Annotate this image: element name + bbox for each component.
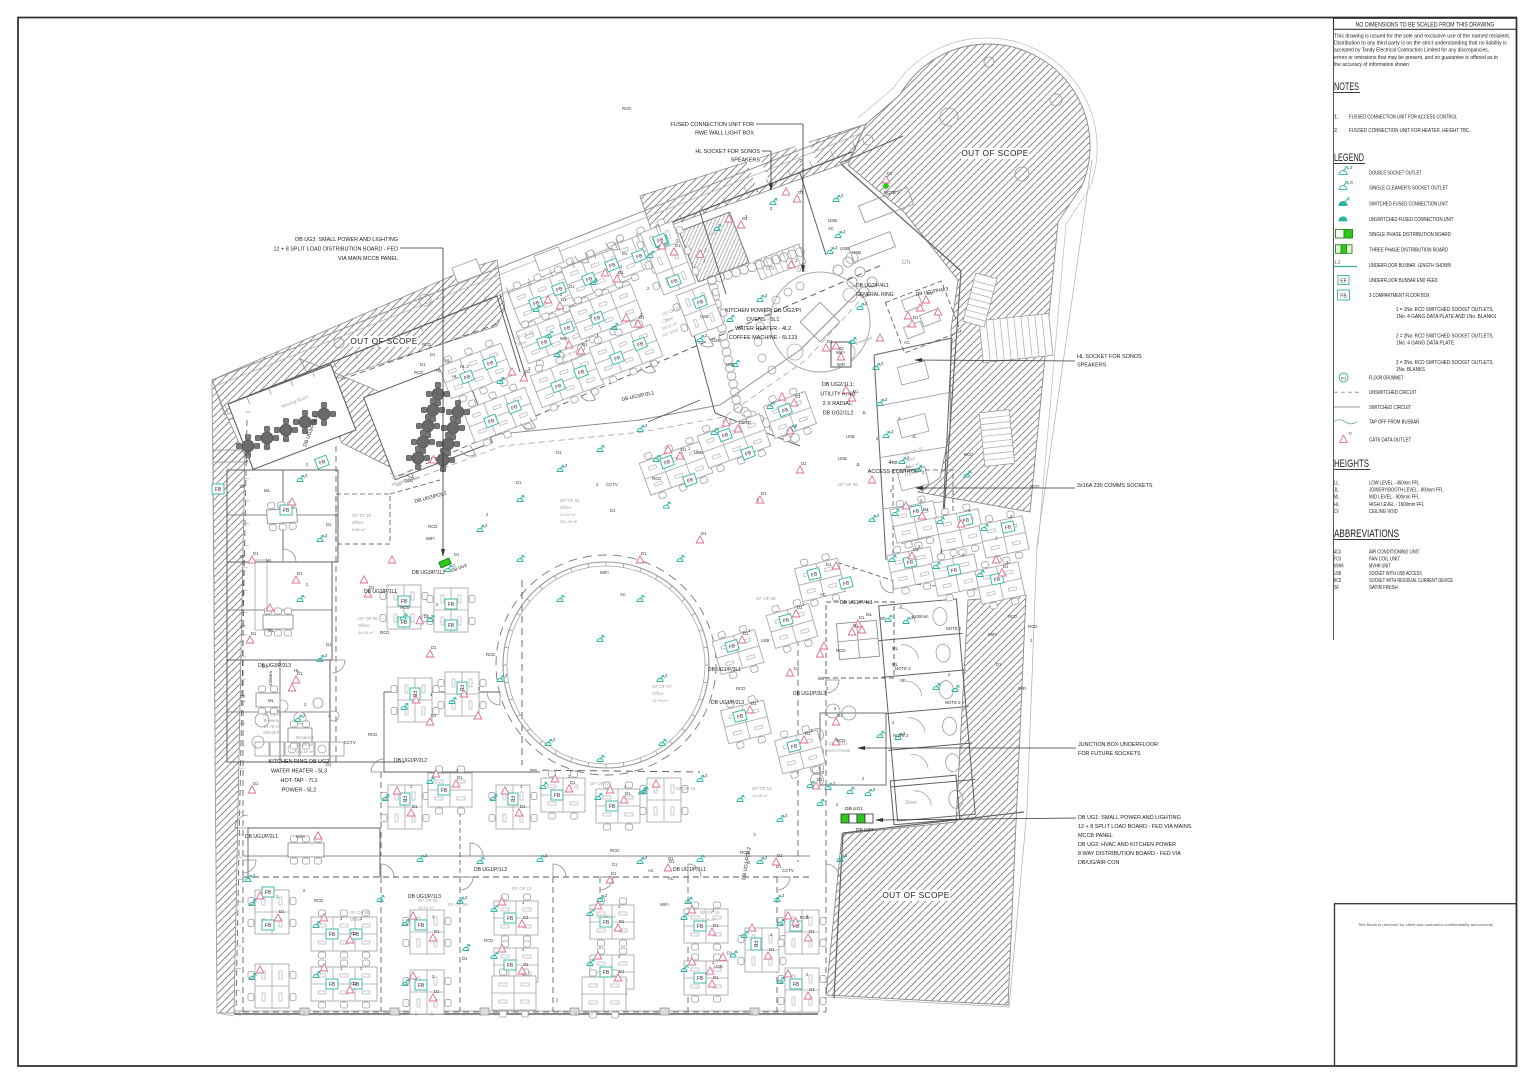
svg-text:FB: FB bbox=[603, 920, 610, 926]
svg-text:UNDERFLOOR BUSBAR END FEED: UNDERFLOOR BUSBAR END FEED bbox=[1369, 278, 1438, 284]
svg-text:D1: D1 bbox=[923, 507, 929, 512]
svg-text:errors or omissions that may b: errors or omissions that may be present,… bbox=[1334, 55, 1498, 61]
svg-text:accepted by Tandy Electrical C: accepted by Tandy Electrical Contractors… bbox=[1334, 48, 1489, 54]
svg-text:D1: D1 bbox=[625, 791, 631, 796]
svg-text:D1: D1 bbox=[887, 171, 893, 176]
svg-text:D1: D1 bbox=[454, 552, 460, 557]
svg-text:GF OF 05: GF OF 05 bbox=[756, 596, 776, 601]
svg-text:NOTE 2: NOTE 2 bbox=[893, 733, 909, 738]
svg-text:WiFi: WiFi bbox=[1018, 686, 1026, 691]
svg-text:GF OF 12: GF OF 12 bbox=[590, 781, 610, 786]
svg-text:SF: SF bbox=[240, 554, 246, 559]
svg-text:Office: Office bbox=[352, 520, 364, 525]
svg-text:RCD: RCD bbox=[422, 342, 431, 347]
svg-text:LL: LL bbox=[1334, 481, 1339, 487]
svg-text:FB: FB bbox=[603, 970, 610, 976]
svg-text:FB: FB bbox=[329, 982, 336, 988]
svg-text:D1: D1 bbox=[326, 642, 332, 647]
svg-text:FB: FB bbox=[793, 982, 800, 988]
svg-text:SPEAKERS: SPEAKERS bbox=[1077, 363, 1107, 369]
svg-text:RCD: RCD bbox=[380, 630, 389, 635]
svg-text:D1: D1 bbox=[612, 862, 618, 867]
svg-text:TAP OFF FROM BUSBAR: TAP OFF FROM BUSBAR bbox=[1369, 420, 1419, 426]
svg-text:RCD: RCD bbox=[400, 605, 409, 610]
svg-text:RCD: RCD bbox=[800, 915, 809, 920]
svg-text:D1: D1 bbox=[556, 450, 562, 455]
svg-text:24.76 m²: 24.76 m² bbox=[264, 724, 281, 729]
svg-text:FB: FB bbox=[509, 796, 515, 803]
svg-text:1.: 1. bbox=[1334, 115, 1338, 121]
svg-text:O1: O1 bbox=[523, 962, 529, 967]
svg-text:CCTV: CCTV bbox=[606, 482, 618, 487]
svg-text:D1: D1 bbox=[610, 508, 616, 513]
svg-text:D1: D1 bbox=[996, 662, 1002, 667]
svg-text:D1: D1 bbox=[809, 929, 815, 934]
svg-text:GF OF 06: GF OF 06 bbox=[838, 482, 858, 487]
svg-text:CEILING VOID: CEILING VOID bbox=[1369, 509, 1398, 515]
svg-text:SOCKET WITH USB ACCESS: SOCKET WITH USB ACCESS bbox=[1369, 571, 1422, 577]
svg-text:2 = 2No. RCD SWITCHED SOCKET O: 2 = 2No. RCD SWITCHED SOCKET OUTLETS, bbox=[1396, 334, 1494, 340]
svg-text:WiFi: WiFi bbox=[426, 536, 435, 541]
svg-text:DN: DN bbox=[797, 268, 806, 274]
svg-text:RCD: RCD bbox=[414, 370, 423, 375]
svg-text:ML: ML bbox=[1334, 495, 1339, 501]
svg-text:D1: D1 bbox=[412, 804, 418, 809]
svg-text:GF OF 15: GF OF 15 bbox=[700, 910, 720, 915]
svg-text:MCCB PANEL: MCCB PANEL bbox=[1078, 833, 1113, 839]
svg-text:FB: FB bbox=[418, 923, 425, 929]
svg-text:DB UG3/P/1L2: DB UG3/P/1L2 bbox=[412, 570, 445, 576]
svg-text:JL: JL bbox=[862, 410, 867, 415]
svg-text:ML: ML bbox=[866, 612, 873, 617]
svg-text:GF OF 07: GF OF 07 bbox=[652, 684, 672, 689]
svg-text:D1: D1 bbox=[777, 853, 783, 858]
svg-text:HL: HL bbox=[1334, 502, 1339, 508]
svg-text:D1: D1 bbox=[351, 931, 357, 936]
svg-text:D1: D1 bbox=[761, 491, 767, 496]
svg-text:D1: D1 bbox=[431, 645, 437, 650]
svg-text:RCD: RCD bbox=[1334, 578, 1341, 584]
svg-text:NOTES: NOTES bbox=[1334, 81, 1359, 93]
svg-text:USB: USB bbox=[761, 638, 770, 643]
svg-text:3 COMPARTMENT FLOOR BOX: 3 COMPARTMENT FLOOR BOX bbox=[1369, 293, 1430, 299]
svg-text:Store: Store bbox=[905, 800, 917, 806]
svg-text:THREE PHASE DISTRIBUTION BOARD: THREE PHASE DISTRIBUTION BOARD bbox=[1369, 248, 1448, 254]
svg-text:SWITCHED FUSED CONNECTION UNIT: SWITCHED FUSED CONNECTION UNIT bbox=[1369, 202, 1449, 208]
svg-text:SF: SF bbox=[240, 694, 246, 699]
svg-text:D1: D1 bbox=[431, 713, 437, 718]
svg-text:SOCKET WITH RESIDUAL CURRENT D: SOCKET WITH RESIDUAL CURRENT DEVICE bbox=[1369, 578, 1453, 584]
svg-text:USB: USB bbox=[714, 964, 723, 969]
svg-text:DN: DN bbox=[902, 260, 911, 266]
svg-text:D1: D1 bbox=[253, 551, 259, 556]
svg-text:D1: D1 bbox=[326, 522, 332, 527]
svg-text:D1: D1 bbox=[826, 562, 832, 567]
svg-text:FB: FB bbox=[554, 793, 561, 799]
svg-text:FB: FB bbox=[401, 796, 407, 803]
svg-text:RCD: RCD bbox=[486, 652, 495, 657]
svg-text:HL 2: HL 2 bbox=[460, 364, 469, 369]
svg-text:HL SOCKET FOR SONOS: HL SOCKET FOR SONOS bbox=[695, 149, 760, 155]
svg-text:GF OF 10: GF OF 10 bbox=[752, 786, 772, 791]
svg-text:RCD: RCD bbox=[622, 106, 631, 111]
svg-text:OVENS - 5L1: OVENS - 5L1 bbox=[747, 317, 780, 323]
svg-text:OUT OF SCOPE: OUT OF SCOPE bbox=[961, 148, 1028, 158]
svg-text:266.56 ft²: 266.56 ft² bbox=[263, 730, 281, 735]
svg-text:SF: SF bbox=[900, 678, 906, 683]
svg-text:MID LEVEL - 900mm FFL: MID LEVEL - 900mm FFL bbox=[1369, 495, 1419, 501]
svg-text:GF OF 04: GF OF 04 bbox=[560, 498, 580, 503]
svg-text:FB: FB bbox=[283, 508, 290, 514]
svg-text:UTILITY RING: UTILITY RING bbox=[820, 392, 855, 398]
svg-text:GF OF 09: GF OF 09 bbox=[448, 902, 468, 907]
svg-text:DB UG2: HVAC AND KITCHEN POWER: DB UG2: HVAC AND KITCHEN POWER bbox=[1078, 842, 1176, 848]
svg-text:RCD: RCD bbox=[610, 848, 619, 853]
svg-text:CAT6 DATA OUTLET: CAT6 DATA OUTLET bbox=[1369, 437, 1412, 443]
svg-text:SF: SF bbox=[240, 484, 246, 489]
svg-text:HOT-TAP - 7L1: HOT-TAP - 7L1 bbox=[281, 778, 318, 784]
svg-text:D1: D1 bbox=[420, 362, 426, 367]
svg-text:Office: Office bbox=[358, 623, 370, 628]
svg-text:OUT OF SCOPE: OUT OF SCOPE bbox=[882, 890, 949, 900]
svg-text:24.76 m²: 24.76 m² bbox=[296, 742, 314, 747]
svg-text:FUSSED CONNECTION UNIT FOR HEA: FUSSED CONNECTION UNIT FOR HEATER. HEIGH… bbox=[1349, 128, 1470, 134]
svg-text:2x16A 230 COMMS SOCKETS: 2x16A 230 COMMS SOCKETS bbox=[1077, 483, 1153, 489]
svg-text:WiFi: WiFi bbox=[660, 902, 669, 907]
svg-text:FG: FG bbox=[1341, 376, 1347, 381]
svg-text:D1: D1 bbox=[681, 447, 687, 452]
svg-text:O1: O1 bbox=[809, 987, 815, 992]
svg-text:ABBREVIATIONS: ABBREVIATIONS bbox=[1334, 528, 1399, 540]
svg-text:28.05 m²: 28.05 m² bbox=[700, 917, 716, 922]
svg-text:NOTE 2: NOTE 2 bbox=[946, 626, 962, 631]
svg-text:D1: D1 bbox=[434, 989, 440, 994]
svg-text:FUSSED CONNECTION UNIT FOR ACC: FUSSED CONNECTION UNIT FOR ACCESS CONTRO… bbox=[1349, 115, 1457, 121]
svg-text:FB: FB bbox=[697, 924, 704, 930]
svg-text:SWITCHED CIRCUIT: SWITCHED CIRCUIT bbox=[1369, 405, 1412, 411]
svg-text:D1: D1 bbox=[668, 856, 674, 861]
svg-text:D1: D1 bbox=[622, 251, 628, 256]
svg-text:SF: SF bbox=[1334, 585, 1339, 591]
svg-text:AC: AC bbox=[820, 592, 826, 597]
svg-text:GF OF 13: GF OF 13 bbox=[596, 914, 616, 919]
svg-text:DB UG1/P/1L3: DB UG1/P/1L3 bbox=[408, 894, 441, 900]
svg-text:3 = 2No. RCD SWITCHED SOCKET O: 3 = 2No. RCD SWITCHED SOCKET OUTLETS, bbox=[1396, 360, 1494, 366]
svg-text:RCD: RCD bbox=[964, 452, 973, 457]
svg-text:GF CS 05: GF CS 05 bbox=[263, 712, 282, 717]
svg-text:2.: 2. bbox=[1334, 128, 1338, 134]
svg-text:FB: FB bbox=[507, 963, 514, 969]
svg-text:DB UG1/P/3L3: DB UG1/P/3L3 bbox=[793, 691, 826, 697]
svg-text:HL SOCKET FOR SONOS: HL SOCKET FOR SONOS bbox=[1077, 354, 1142, 360]
svg-text:GF OF 13: GF OF 13 bbox=[512, 886, 532, 891]
svg-text:FB: FB bbox=[507, 916, 514, 922]
svg-text:Secret Room: Secret Room bbox=[826, 748, 851, 753]
svg-text:26.42 m²: 26.42 m² bbox=[418, 905, 434, 910]
svg-text:WiFi: WiFi bbox=[836, 350, 845, 355]
svg-text:D1: D1 bbox=[913, 315, 919, 320]
svg-text:D1: D1 bbox=[701, 531, 707, 536]
svg-text:D1: D1 bbox=[618, 270, 624, 275]
svg-text:D1: D1 bbox=[430, 352, 436, 357]
svg-text:SINGLE PHASE DISTRIBUTION BOAR: SINGLE PHASE DISTRIBUTION BOARD bbox=[1369, 232, 1451, 238]
svg-text:JOINERY/BOOTH LEVEL - 800mm FF: JOINERY/BOOTH LEVEL - 800mm FFL bbox=[1369, 488, 1443, 494]
svg-text:44.55 m²: 44.55 m² bbox=[358, 630, 374, 635]
svg-text:O1: O1 bbox=[351, 981, 357, 986]
svg-text:RCD: RCD bbox=[1008, 614, 1017, 619]
svg-text:HL: HL bbox=[452, 374, 458, 379]
svg-text:D1: D1 bbox=[837, 713, 843, 718]
svg-text:AC: AC bbox=[648, 868, 654, 873]
svg-text:ML: ML bbox=[268, 628, 275, 633]
svg-text:GF OF 08: GF OF 08 bbox=[350, 910, 370, 915]
svg-text:1100mm: 1100mm bbox=[912, 614, 929, 619]
svg-text:1No. 4 GANG DATA PLATE AND 1No: 1No. 4 GANG DATA PLATE AND 1No. BLANKS bbox=[1396, 314, 1497, 320]
svg-text:FB: FB bbox=[697, 976, 704, 982]
svg-text:D1: D1 bbox=[619, 919, 625, 924]
svg-text:WATER HEATER - 5L3: WATER HEATER - 5L3 bbox=[271, 769, 327, 775]
svg-text:32.62 m²: 32.62 m² bbox=[560, 512, 576, 517]
svg-text:WiFi: WiFi bbox=[837, 362, 845, 367]
svg-text:DB UG1/P/2L1: DB UG1/P/2L1 bbox=[245, 834, 278, 840]
svg-text:CCTV: CCTV bbox=[782, 868, 794, 873]
svg-text:351.26 ft²: 351.26 ft² bbox=[560, 519, 578, 524]
svg-text:D1: D1 bbox=[462, 956, 468, 961]
svg-text:JL: JL bbox=[912, 434, 917, 439]
svg-text:15.76 m²: 15.76 m² bbox=[652, 698, 668, 703]
svg-text:WiFi: WiFi bbox=[296, 834, 305, 839]
svg-text:USB: USB bbox=[1334, 571, 1341, 577]
svg-text:DB UG2/1L1:: DB UG2/1L1: bbox=[822, 382, 855, 388]
svg-text:D1: D1 bbox=[713, 923, 719, 928]
svg-text:D1: D1 bbox=[794, 666, 800, 671]
svg-text:FB: FB bbox=[215, 487, 222, 493]
svg-text:USB: USB bbox=[838, 456, 847, 461]
svg-text:DB UG1/P/3L1: DB UG1/P/3L1 bbox=[708, 667, 741, 673]
svg-text:FB: FB bbox=[441, 788, 448, 794]
svg-text:ACU: ACU bbox=[1334, 550, 1341, 556]
svg-text:EF: EF bbox=[1340, 279, 1346, 285]
svg-text:O1: O1 bbox=[523, 915, 529, 920]
svg-text:CCTV: CCTV bbox=[344, 740, 356, 745]
svg-text:COFFEE MACHINE - 6L123: COFFEE MACHINE - 6L123 bbox=[729, 335, 798, 341]
svg-text:4no: 4no bbox=[888, 460, 897, 466]
svg-text:DB UG1: DB UG1 bbox=[845, 806, 863, 812]
svg-text:AC: AC bbox=[828, 226, 834, 231]
svg-text:NOTE 2: NOTE 2 bbox=[895, 666, 911, 671]
svg-text:JL: JL bbox=[1334, 488, 1339, 494]
svg-text:JUNCTION BOX UNDERFLOOR: JUNCTION BOX UNDERFLOOR bbox=[1078, 742, 1158, 748]
svg-text:D1: D1 bbox=[619, 969, 625, 974]
svg-text:JL: JL bbox=[856, 462, 861, 467]
svg-text:AC: AC bbox=[620, 592, 626, 597]
svg-text:DB UG3/P/1L1: DB UG3/P/1L1 bbox=[364, 589, 397, 595]
svg-text:5.80 m²: 5.80 m² bbox=[352, 527, 366, 532]
svg-text:Office: Office bbox=[652, 691, 664, 696]
svg-text:USB: USB bbox=[846, 434, 855, 439]
svg-text:FLOOR GROMMET: FLOOR GROMMET bbox=[1369, 376, 1404, 382]
svg-text:RCD: RCD bbox=[1028, 624, 1037, 629]
svg-text:SPEAKERS: SPEAKERS bbox=[731, 158, 761, 164]
svg-text:FB: FB bbox=[401, 620, 408, 626]
svg-text:266.56 ft²: 266.56 ft² bbox=[296, 749, 314, 754]
svg-text:D1: D1 bbox=[675, 243, 681, 248]
svg-text:KITCHEN POWER: DB UG2/PI: KITCHEN POWER: DB UG2/PI bbox=[725, 308, 801, 314]
svg-text:D1: D1 bbox=[776, 864, 782, 869]
svg-text:KITCHEN RING DB UG2: KITCHEN RING DB UG2 bbox=[269, 759, 330, 765]
svg-text:RCD: RCD bbox=[836, 738, 845, 743]
svg-text:NOTE 2: NOTE 2 bbox=[945, 700, 961, 705]
svg-text:FB: FB bbox=[609, 804, 616, 810]
svg-text:LEGEND: LEGEND bbox=[1334, 152, 1364, 164]
svg-text:D1: D1 bbox=[859, 615, 865, 620]
svg-text:1.2: 1.2 bbox=[1334, 260, 1341, 265]
svg-text:USB: USB bbox=[840, 246, 849, 251]
svg-text:DB UG1/P/1L1: DB UG1/P/1L1 bbox=[673, 867, 706, 873]
svg-text:RCD: RCD bbox=[314, 898, 323, 903]
svg-text:DB/UG/AIR CON: DB/UG/AIR CON bbox=[1078, 860, 1119, 866]
svg-text:VIA MAIN MCCB PANEL: VIA MAIN MCCB PANEL bbox=[338, 256, 398, 262]
svg-text:DB UG1/P/2L2: DB UG1/P/2L2 bbox=[394, 758, 427, 764]
svg-text:FB: FB bbox=[329, 932, 336, 938]
svg-text:DB UG2/1L2: DB UG2/1L2 bbox=[823, 411, 854, 417]
svg-text:AC: AC bbox=[668, 876, 674, 881]
svg-text:WiFi: WiFi bbox=[988, 632, 997, 637]
svg-text:MVHR: MVHR bbox=[1334, 564, 1344, 570]
svg-text:D1: D1 bbox=[561, 297, 567, 302]
svg-text:HL: HL bbox=[445, 358, 451, 363]
svg-text:Office: Office bbox=[560, 505, 572, 510]
svg-text:D1: D1 bbox=[817, 777, 823, 782]
svg-text:D1: D1 bbox=[727, 950, 733, 955]
svg-text:D1: D1 bbox=[769, 947, 775, 952]
svg-text:D1: D1 bbox=[326, 762, 332, 767]
svg-text:RCD: RCD bbox=[836, 648, 845, 653]
svg-text:1No. BLANKS: 1No. BLANKS bbox=[1396, 367, 1425, 373]
svg-text:AIR CONDITIONING UNIT: AIR CONDITIONING UNIT bbox=[1369, 550, 1420, 556]
svg-text:Breakout: Breakout bbox=[296, 735, 314, 740]
svg-text:SINGLE CLEANER'S SOCKET OUTLET: SINGLE CLEANER'S SOCKET OUTLET bbox=[1369, 186, 1449, 192]
svg-text:ML: ML bbox=[264, 488, 271, 493]
svg-text:POWER - 5L2: POWER - 5L2 bbox=[282, 788, 316, 794]
svg-text:ML: ML bbox=[268, 698, 275, 703]
svg-text:WiFi: WiFi bbox=[560, 336, 569, 341]
svg-text:D1: D1 bbox=[434, 929, 440, 934]
svg-text:HIGH LEVEL - 1600mm FFL: HIGH LEVEL - 1600mm FFL bbox=[1369, 502, 1424, 508]
svg-text:DOUBLE SOCKET OUTLET: DOUBLE SOCKET OUTLET bbox=[1369, 171, 1422, 177]
svg-text:UNSWITCHED CIRCUIT: UNSWITCHED CIRCUIT bbox=[1369, 390, 1417, 396]
svg-text:D1: D1 bbox=[641, 551, 647, 556]
svg-text:DB UG1/P/4L1: DB UG1/P/4L1 bbox=[840, 600, 873, 606]
svg-text:D1: D1 bbox=[279, 909, 285, 914]
svg-text:This drawing is issued for the: This drawing is issued for the sole and … bbox=[1334, 33, 1510, 39]
svg-text:WiFi: WiFi bbox=[600, 570, 609, 575]
svg-text:AC: AC bbox=[904, 340, 910, 345]
svg-text:DB UG3: SMALL POWER AND LIGHTI: DB UG3: SMALL POWER AND LIGHTING bbox=[295, 237, 398, 243]
svg-text:RCD: RCD bbox=[368, 732, 377, 737]
svg-text:GF OF 08: GF OF 08 bbox=[358, 616, 378, 621]
svg-text:D1: D1 bbox=[569, 284, 575, 289]
svg-text:UNDERFLOOR BUSBAR. LENGTH SHOW: UNDERFLOOR BUSBAR. LENGTH SHOWN bbox=[1369, 263, 1451, 269]
svg-text:NOTE 1: NOTE 1 bbox=[884, 190, 900, 195]
svg-text:FCU: FCU bbox=[1334, 557, 1341, 563]
svg-text:FB: FB bbox=[752, 941, 758, 948]
svg-text:FB: FB bbox=[1340, 294, 1347, 300]
svg-text:GF OF 14: GF OF 14 bbox=[676, 786, 696, 791]
svg-text:D1: D1 bbox=[424, 614, 430, 619]
svg-text:ML: ML bbox=[266, 558, 273, 563]
svg-text:D: D bbox=[1349, 431, 1352, 436]
svg-text:12 + 8 SPLIT LOAD BOARD - FED: 12 + 8 SPLIT LOAD BOARD - FED VIA MAINS bbox=[1078, 824, 1192, 830]
svg-text:DB UG3/P/2L3: DB UG3/P/2L3 bbox=[258, 663, 291, 669]
svg-text:FOR FUTURE SOCKETS: FOR FUTURE SOCKETS bbox=[1078, 751, 1141, 757]
svg-text:D1: D1 bbox=[570, 780, 576, 785]
svg-text:USB: USB bbox=[700, 314, 709, 319]
svg-text:NO DIMENSIONS TO BE SCALED FRO: NO DIMENSIONS TO BE SCALED FROM THIS DRA… bbox=[1356, 22, 1495, 29]
svg-text:D1: D1 bbox=[853, 623, 859, 628]
svg-text:FB: FB bbox=[448, 602, 455, 608]
svg-text:SF: SF bbox=[240, 624, 246, 629]
svg-text:GF ST 15: GF ST 15 bbox=[352, 513, 372, 518]
svg-text:RCD: RCD bbox=[428, 524, 437, 529]
svg-text:D1: D1 bbox=[801, 461, 807, 466]
svg-text:SATIN FINISH: SATIN FINISH bbox=[1369, 585, 1398, 591]
svg-text:HL: HL bbox=[294, 668, 300, 673]
svg-text:DB UG1: SMALL POWER AND LIGHTI: DB UG1: SMALL POWER AND LIGHTING bbox=[1078, 815, 1181, 821]
svg-text:D1: D1 bbox=[457, 775, 463, 780]
svg-text:Distribution to any third part: Distribution to any third party is on th… bbox=[1334, 41, 1507, 47]
svg-text:WiFi: WiFi bbox=[818, 676, 827, 681]
svg-text:DB UG1/P/1L2: DB UG1/P/1L2 bbox=[474, 867, 507, 873]
svg-text:1 = 1No. RCD SWITCHED SOCKET O: 1 = 1No. RCD SWITCHED SOCKET OUTLETS, bbox=[1396, 307, 1494, 313]
svg-text:FB: FB bbox=[418, 983, 425, 989]
svg-text:DB UG1/P/2L3: DB UG1/P/2L3 bbox=[711, 700, 744, 706]
svg-text:Breakout: Breakout bbox=[264, 718, 282, 723]
svg-text:HEIGHTS: HEIGHTS bbox=[1334, 458, 1369, 470]
svg-text:450mm: 450mm bbox=[268, 671, 273, 686]
svg-text:RCD: RCD bbox=[484, 938, 493, 943]
svg-text:FAN COIL UNIT: FAN COIL UNIT bbox=[1369, 557, 1401, 563]
svg-text:2: 2 bbox=[1350, 165, 1353, 170]
svg-text:D1: D1 bbox=[297, 571, 303, 576]
svg-text:D1: D1 bbox=[516, 480, 522, 485]
svg-text:1No. 4 GANG DATA PLATE: 1No. 4 GANG DATA PLATE bbox=[1396, 340, 1455, 346]
svg-text:8 WAY DISTRIBUTION BOARD - FED: 8 WAY DISTRIBUTION BOARD - FED VIA bbox=[1078, 851, 1181, 857]
svg-text:USB: USB bbox=[694, 450, 703, 455]
svg-text:LOW LEVEL - 450mm FFL: LOW LEVEL - 450mm FFL bbox=[1369, 481, 1419, 487]
svg-text:FB: FB bbox=[448, 623, 455, 629]
svg-text:12 + 8 SPLIT LOAD DISTRIBUTION: 12 + 8 SPLIT LOAD DISTRIBUTION BOARD - F… bbox=[273, 247, 398, 253]
svg-text:D1: D1 bbox=[251, 631, 257, 636]
svg-text:the accuracy of information sh: the accuracy of information shown bbox=[1334, 62, 1409, 68]
svg-text:USB: USB bbox=[828, 218, 837, 223]
svg-text:DB UG2/P/4L1: DB UG2/P/4L1 bbox=[856, 283, 889, 289]
svg-text:HL: HL bbox=[436, 368, 442, 373]
svg-text:RCD: RCD bbox=[736, 686, 745, 691]
svg-text:MVHR UNIT: MVHR UNIT bbox=[1369, 564, 1391, 570]
svg-text:RCD: RCD bbox=[652, 476, 661, 481]
svg-text:FB: FB bbox=[265, 890, 272, 896]
svg-text:RWE WALL LIGHT BOX: RWE WALL LIGHT BOX bbox=[695, 131, 754, 137]
svg-text:D1: D1 bbox=[520, 804, 526, 809]
svg-text:WATER HEATER - 4L2: WATER HEATER - 4L2 bbox=[735, 326, 791, 332]
svg-text:USB: USB bbox=[852, 250, 861, 255]
svg-text:ML: ML bbox=[892, 646, 899, 651]
svg-text:FUSED CONNECTION UNIT FOR: FUSED CONNECTION UNIT FOR bbox=[670, 122, 754, 128]
svg-text:GENERAL RING: GENERAL RING bbox=[856, 292, 894, 298]
svg-text:D1: D1 bbox=[827, 339, 833, 344]
svg-text:D1: D1 bbox=[713, 975, 719, 980]
